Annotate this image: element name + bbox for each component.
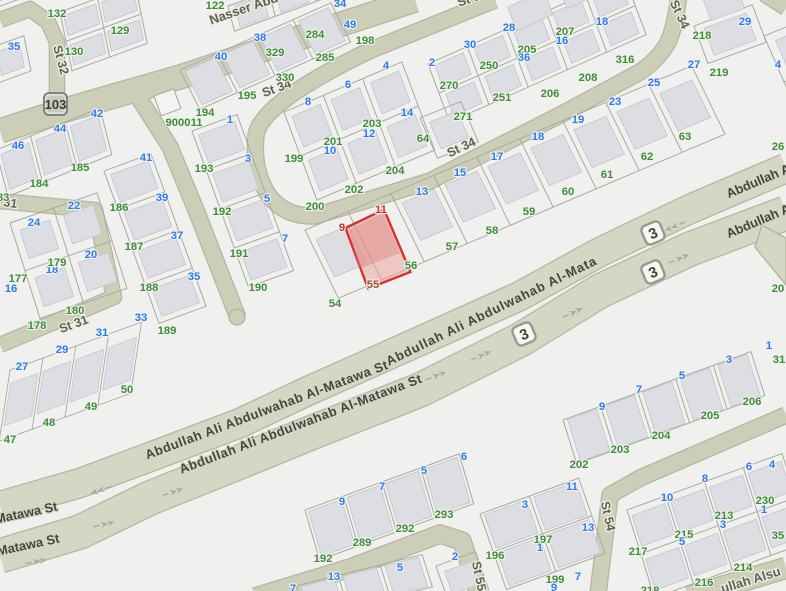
svg-text:103: 103: [45, 97, 67, 112]
svg-text:7: 7: [636, 384, 642, 396]
svg-text:7: 7: [575, 571, 581, 583]
svg-text:10: 10: [661, 492, 674, 504]
svg-text:251: 251: [493, 92, 512, 104]
svg-text:17: 17: [491, 151, 504, 163]
svg-text:122: 122: [206, 0, 225, 12]
svg-text:130: 130: [65, 46, 84, 58]
svg-text:48: 48: [43, 417, 56, 429]
svg-text:192: 192: [213, 206, 232, 218]
svg-text:219: 219: [710, 67, 729, 79]
svg-text:204: 204: [652, 430, 672, 442]
svg-text:19: 19: [572, 114, 585, 126]
svg-text:5: 5: [397, 562, 403, 574]
svg-text:195: 195: [238, 90, 257, 102]
svg-text:284: 284: [306, 29, 326, 41]
svg-text:204: 204: [386, 165, 406, 177]
svg-text:1: 1: [227, 114, 233, 126]
svg-text:40: 40: [215, 51, 228, 63]
svg-text:3: 3: [720, 519, 726, 531]
svg-text:49: 49: [85, 401, 98, 413]
svg-text:292: 292: [396, 523, 415, 535]
svg-text:26: 26: [772, 141, 785, 153]
svg-text:183: 183: [0, 192, 9, 204]
svg-text:193: 193: [195, 163, 214, 175]
svg-text:31: 31: [773, 354, 786, 366]
svg-text:203: 203: [611, 444, 630, 456]
svg-text:35: 35: [772, 530, 785, 542]
svg-text:28: 28: [503, 22, 516, 34]
svg-text:13: 13: [328, 571, 341, 583]
svg-text:29: 29: [56, 344, 69, 356]
svg-text:39: 39: [156, 192, 169, 204]
svg-text:198: 198: [356, 35, 375, 47]
svg-text:29: 29: [739, 16, 752, 28]
svg-text:206: 206: [541, 88, 560, 100]
svg-text:185: 185: [71, 162, 90, 174]
svg-text:179: 179: [48, 257, 67, 269]
svg-text:18: 18: [532, 131, 545, 143]
svg-text:44: 44: [54, 123, 67, 135]
svg-text:217: 217: [629, 546, 648, 558]
svg-text:54: 54: [329, 298, 342, 310]
svg-text:178: 178: [28, 320, 47, 332]
svg-text:4: 4: [383, 60, 390, 72]
svg-text:1: 1: [766, 340, 772, 352]
svg-text:5: 5: [679, 370, 685, 382]
svg-text:2: 2: [452, 551, 458, 563]
svg-text:216: 216: [695, 577, 714, 589]
svg-text:316: 316: [616, 54, 635, 66]
svg-text:3: 3: [726, 354, 732, 366]
svg-text:12: 12: [363, 128, 376, 140]
svg-text:30: 30: [464, 39, 477, 51]
svg-text:41: 41: [140, 152, 153, 164]
svg-text:1: 1: [761, 504, 767, 516]
svg-text:22: 22: [68, 200, 81, 212]
svg-text:9: 9: [339, 222, 345, 234]
svg-text:57: 57: [446, 241, 459, 253]
svg-text:218: 218: [641, 585, 660, 591]
svg-text:35: 35: [8, 41, 21, 53]
svg-text:196: 196: [486, 550, 505, 562]
svg-text:34: 34: [334, 0, 347, 10]
svg-text:23: 23: [609, 96, 622, 108]
svg-text:4: 4: [769, 459, 776, 471]
svg-text:55: 55: [367, 279, 380, 291]
svg-text:188: 188: [140, 282, 159, 294]
svg-text:202: 202: [570, 459, 589, 471]
svg-text:9: 9: [599, 401, 605, 413]
svg-text:5: 5: [421, 465, 427, 477]
svg-text:205: 205: [701, 410, 720, 422]
svg-text:208: 208: [579, 72, 598, 84]
svg-text:31: 31: [96, 327, 109, 339]
svg-text:5: 5: [679, 536, 685, 548]
svg-text:189: 189: [158, 325, 177, 337]
svg-text:9: 9: [339, 496, 345, 508]
svg-text:25: 25: [648, 77, 661, 89]
svg-text:20: 20: [85, 249, 98, 261]
svg-text:329: 329: [266, 47, 285, 59]
svg-text:8: 8: [702, 473, 708, 485]
svg-text:330: 330: [276, 72, 295, 84]
svg-text:24: 24: [28, 217, 41, 229]
svg-text:6: 6: [746, 461, 752, 473]
svg-text:187: 187: [125, 241, 144, 253]
svg-text:11: 11: [375, 204, 387, 216]
svg-text:293: 293: [435, 509, 454, 521]
svg-text:132: 132: [48, 8, 67, 20]
svg-text:37: 37: [171, 230, 184, 242]
svg-text:218: 218: [693, 30, 712, 42]
svg-text:13: 13: [416, 186, 429, 198]
svg-text:184: 184: [30, 178, 50, 190]
svg-text:36: 36: [518, 52, 531, 64]
svg-text:8: 8: [305, 96, 311, 108]
svg-text:11: 11: [566, 481, 578, 493]
svg-text:4: 4: [775, 59, 782, 71]
svg-text:27: 27: [16, 361, 29, 373]
svg-text:1: 1: [537, 542, 543, 554]
svg-text:9: 9: [551, 582, 557, 591]
svg-text:61: 61: [601, 169, 614, 181]
svg-text:59: 59: [523, 206, 536, 218]
svg-text:60: 60: [562, 186, 575, 198]
svg-text:7: 7: [379, 481, 385, 493]
svg-text:14: 14: [401, 107, 414, 119]
svg-text:3: 3: [245, 153, 251, 165]
svg-text:16: 16: [556, 35, 569, 47]
svg-text:3: 3: [522, 499, 528, 511]
svg-text:2: 2: [429, 57, 435, 69]
svg-text:42: 42: [91, 108, 104, 120]
svg-text:6: 6: [345, 79, 351, 91]
svg-text:46: 46: [12, 140, 25, 152]
svg-text:62: 62: [641, 151, 654, 163]
svg-text:50: 50: [121, 384, 134, 396]
svg-text:47: 47: [4, 434, 17, 446]
svg-text:271: 271: [454, 111, 473, 123]
svg-text:38: 38: [254, 32, 267, 44]
svg-text:56: 56: [405, 260, 418, 272]
svg-text:289: 289: [353, 537, 372, 549]
svg-text:35: 35: [188, 271, 201, 283]
svg-text:27: 27: [688, 59, 701, 71]
svg-text:49: 49: [344, 19, 357, 31]
svg-text:13: 13: [582, 522, 595, 534]
svg-text:6: 6: [461, 451, 467, 463]
svg-text:285: 285: [316, 52, 335, 64]
svg-text:206: 206: [743, 396, 762, 408]
svg-text:129: 129: [111, 25, 130, 37]
svg-text:7: 7: [282, 233, 288, 245]
svg-text:191: 191: [230, 248, 249, 260]
svg-text:202: 202: [345, 184, 364, 196]
svg-text:250: 250: [480, 60, 499, 72]
svg-text:192: 192: [314, 553, 333, 565]
svg-text:214: 214: [734, 562, 754, 574]
svg-text:10: 10: [324, 145, 337, 157]
svg-text:7: 7: [290, 583, 296, 591]
svg-text:190: 190: [249, 282, 268, 294]
svg-text:900011: 900011: [165, 117, 202, 129]
svg-text:270: 270: [440, 80, 459, 92]
svg-text:20: 20: [772, 283, 785, 295]
svg-text:58: 58: [486, 225, 499, 237]
svg-text:5: 5: [264, 193, 270, 205]
svg-text:18: 18: [596, 16, 609, 28]
svg-text:200: 200: [306, 201, 325, 213]
svg-text:180: 180: [66, 305, 85, 317]
svg-text:63: 63: [679, 131, 692, 143]
svg-text:199: 199: [285, 153, 304, 165]
svg-text:186: 186: [110, 202, 129, 214]
svg-text:15: 15: [454, 167, 467, 179]
svg-text:64: 64: [417, 133, 430, 145]
svg-text:16: 16: [5, 283, 18, 295]
svg-text:33: 33: [135, 312, 148, 324]
